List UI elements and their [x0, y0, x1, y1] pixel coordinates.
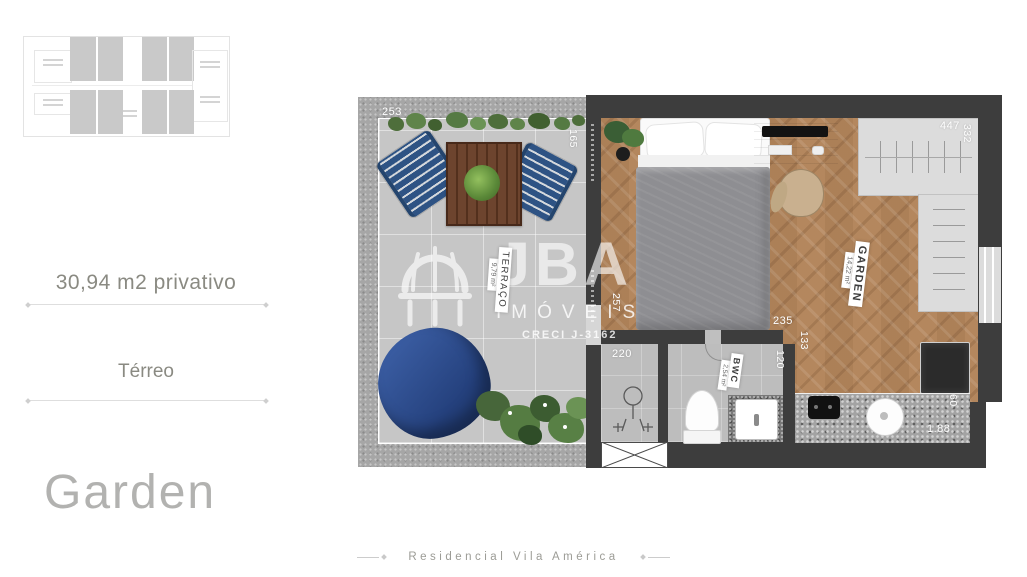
plant-foliage — [446, 112, 468, 128]
plant-foliage — [388, 117, 404, 131]
mini-floor-plan-thumbnail — [23, 36, 230, 137]
mouse — [812, 146, 824, 155]
dimension-label: 332 — [961, 124, 973, 143]
mini-plan-block — [70, 90, 96, 134]
plant-foliage — [518, 425, 542, 445]
dimension-label: 165 — [567, 129, 579, 148]
kitchen-sink — [866, 398, 904, 436]
dimension-label: 257 — [610, 293, 622, 312]
wall-dimension-marks — [591, 270, 594, 322]
dimension-label: 235 — [773, 315, 793, 327]
plant-foliage — [572, 115, 585, 126]
bed-blanket — [636, 167, 770, 330]
mini-plan-divider — [32, 85, 192, 86]
mini-plan-cell — [34, 93, 72, 115]
mini-plan-block — [98, 90, 123, 134]
window-right — [979, 247, 1001, 323]
dimension-label: 133 — [798, 331, 810, 350]
mini-plan-block — [98, 37, 123, 81]
keyboard — [768, 145, 792, 155]
unit-name-title: Garden — [44, 465, 216, 520]
toilet-tank — [683, 430, 721, 444]
footer-ornament-left — [357, 555, 386, 559]
cooktop — [808, 396, 840, 419]
wardrobe-rail — [865, 141, 972, 173]
plant-foliage — [428, 119, 442, 131]
plant-flower — [563, 425, 567, 429]
floor-level-label: Térreo — [0, 361, 292, 383]
floor-plan-drawing: 9,79 m² TERRAÇO 14,22 m² GARDEN 2,54 m² … — [358, 95, 1002, 468]
floor-plan-page: 30,94 m2 privativo Térreo Garden — [0, 0, 1027, 577]
mini-plan-block — [142, 37, 167, 81]
wardrobe-right — [918, 194, 979, 312]
plant-flower — [508, 411, 512, 415]
appliance-square — [920, 342, 970, 394]
tv-panel — [762, 126, 828, 137]
dimension-label: 253 — [382, 106, 402, 118]
door-opening-bwc — [705, 330, 721, 344]
plant-flower — [543, 403, 547, 407]
mini-plan-block — [70, 37, 96, 81]
dimension-label: 1.88 — [927, 423, 950, 435]
plant-foliage — [488, 114, 508, 129]
mini-plan-block — [169, 37, 194, 81]
shower-tray — [735, 399, 778, 440]
desk — [754, 118, 838, 164]
plant-foliage — [406, 113, 426, 129]
private-area-label: 30,94 m2 privativo — [0, 271, 292, 295]
mini-plan-block — [169, 90, 194, 134]
plant-foliage — [510, 118, 525, 130]
wardrobe-rail — [933, 201, 965, 305]
footer-brand-row: Residencial Vila América — [0, 551, 1027, 563]
footer-ornament-right — [641, 555, 670, 559]
mini-plan-block — [142, 90, 167, 134]
plan-notch — [986, 402, 1002, 468]
mini-plan-cell — [123, 107, 137, 117]
shaft-crossed-box — [601, 442, 668, 468]
plant-foliage — [470, 117, 486, 130]
dimension-label: 60 — [947, 394, 959, 407]
wall-bedroom-bath — [601, 330, 783, 344]
plant-foliage — [622, 129, 644, 147]
dimension-label: 220 — [612, 348, 632, 360]
divider-line — [27, 304, 267, 305]
mini-plan-cell — [192, 50, 228, 122]
wall-dimension-marks — [591, 123, 594, 181]
laundry-tub-symbol — [606, 383, 660, 440]
divider-line — [27, 400, 267, 401]
table-plant — [464, 165, 500, 201]
terrace-room-label: 9,79 m² TERRAÇO — [486, 246, 512, 312]
dimension-label: 447 — [940, 120, 960, 132]
footer-brand-text: Residencial Vila América — [408, 551, 618, 563]
plant-foliage — [528, 113, 550, 129]
wall-top — [586, 95, 1002, 118]
dimension-label: 120 — [774, 350, 786, 369]
mini-plan-cell — [34, 50, 72, 83]
vase — [616, 147, 630, 161]
